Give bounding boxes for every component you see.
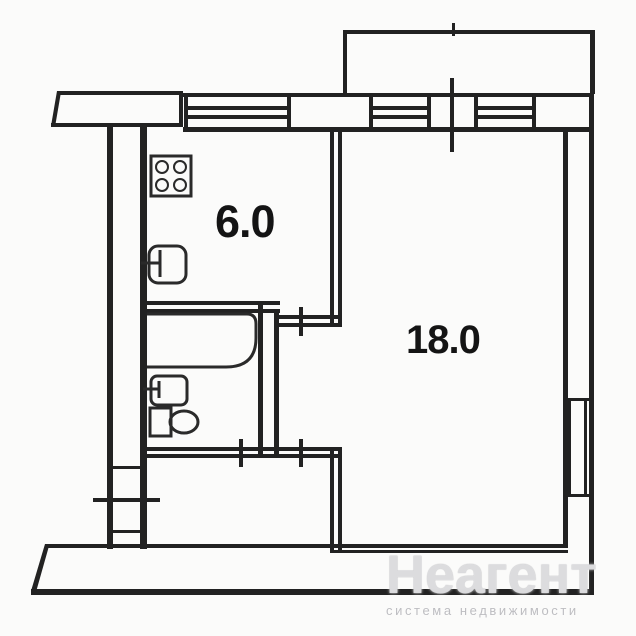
hall-passage-door-mark (299, 439, 303, 467)
stair-landing (51, 91, 183, 127)
left-wall (107, 126, 147, 549)
balcony-door-mark (450, 78, 454, 152)
wash-basin-icon (143, 376, 187, 405)
living-room-window-left (369, 93, 431, 132)
bottom-wall (45, 544, 568, 553)
kitchen-living-wall (330, 131, 342, 327)
stove-icon (151, 156, 191, 196)
balcony-outline (343, 23, 595, 94)
toilet-icon (150, 408, 198, 436)
kitchen-area-label: 6.0 (215, 199, 275, 244)
entrance-door-mark (93, 498, 160, 502)
living-room-area-label: 18.0 (406, 320, 480, 360)
bathroom-walls (140, 301, 280, 455)
living-room-window-right (474, 93, 536, 132)
bathroom-door-mark (239, 439, 243, 467)
floor-plan-scan: 6.0 18.0 Неагент система недвижимости (0, 0, 636, 636)
sink-icon (141, 246, 186, 283)
bathtub-icon (147, 314, 256, 367)
floor-plan-drawing (0, 0, 636, 636)
living-room-left-wall-lower (330, 450, 342, 552)
right-wall (563, 94, 594, 594)
top-wall-window-band (183, 93, 593, 132)
kitchen-window (184, 93, 291, 132)
kitchen-door-mark (299, 307, 303, 336)
